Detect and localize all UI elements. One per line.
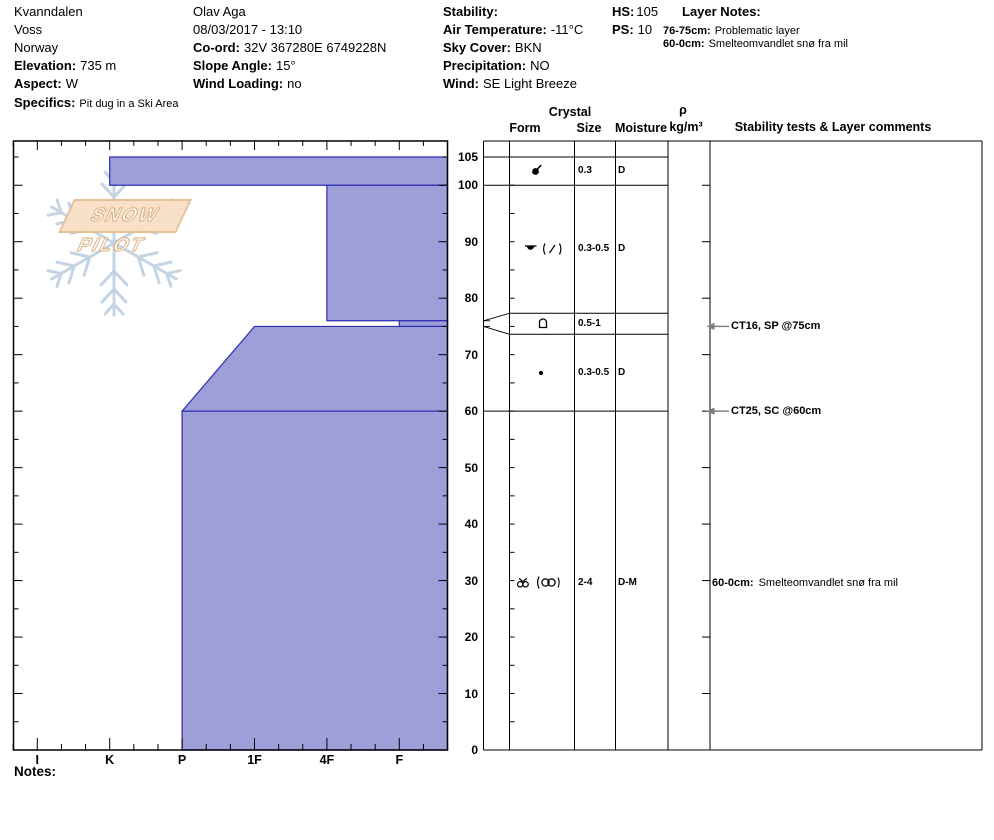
- snowpit-report-page: { "colors": { "layer_fill": "#9e9ed8", "…: [0, 0, 994, 840]
- grain-size-cell: 0.5-1: [578, 317, 601, 331]
- snow-layer: [182, 411, 447, 750]
- snow-layer: [182, 326, 447, 411]
- notes-label: Notes:: [14, 764, 56, 779]
- depth-tick-label: 0: [471, 742, 478, 758]
- depth-tick-label: 70: [465, 347, 478, 363]
- depth-tick-label: 105: [458, 149, 478, 165]
- hardness-tick-label: F: [384, 753, 414, 767]
- hardness-tick-label: P: [167, 753, 197, 767]
- grain-size-cell: 0.3-0.5: [578, 366, 609, 380]
- depth-tick-label: 10: [465, 686, 478, 702]
- horned-double-circle-grain-icon: [515, 575, 532, 590]
- hardness-tick-label: K: [95, 753, 125, 767]
- density-symbol-header: ρ: [673, 103, 693, 117]
- moisture-cell: D: [618, 366, 625, 380]
- crystal-header: Crystal: [540, 105, 600, 119]
- dot-slash-grain-icon: [530, 163, 544, 177]
- paren-slash-grain-icon: [541, 242, 564, 256]
- snow-layer: [110, 157, 448, 185]
- depth-tick-label: 50: [465, 460, 478, 476]
- thin-layer-expansion-wedge: [484, 313, 510, 334]
- grain-size-cell: 0.3: [578, 164, 592, 178]
- snow-layer: [327, 185, 448, 321]
- form-header: Form: [500, 121, 550, 135]
- stability-tests-header: Stability tests & Layer comments: [707, 120, 959, 134]
- moisture-cell: D: [618, 164, 625, 178]
- paren-double-circle-grain-icon: [535, 575, 563, 590]
- grain-size-cell: 0.3-0.5: [578, 242, 609, 256]
- table-grid: [484, 141, 983, 750]
- snowpilot-watermark-banner: SNOW PILOT: [58, 199, 192, 233]
- depth-tick-label: 80: [465, 290, 478, 306]
- stability-test-result: CT25, SC @60cm: [731, 405, 821, 418]
- depth-tick-label: 60: [465, 403, 478, 419]
- hardness-tick-label: 4F: [312, 753, 342, 767]
- snow-layer: [399, 321, 447, 327]
- dot-topbar-grain-icon: [524, 242, 538, 256]
- size-header: Size: [564, 121, 614, 135]
- depth-tick-label: 100: [458, 177, 478, 193]
- depth-tick-label: 20: [465, 629, 478, 645]
- stability-test-result: CT16, SP @75cm: [731, 320, 820, 333]
- depth-tick-label: 30: [465, 573, 478, 589]
- moisture-header: Moisture: [615, 121, 667, 135]
- depth-axis-labels: 1051009080706050403020100: [449, 0, 478, 840]
- layer-comment: 60-0cm:Smelteomvandlet snø fra mil: [712, 577, 898, 590]
- small-dot-grain-icon: [534, 366, 548, 380]
- density-units-header: kg/m³: [661, 120, 711, 134]
- depth-tick-label: 40: [465, 516, 478, 532]
- hardness-tick-label: 1F: [240, 753, 270, 767]
- depth-tick-label: 90: [465, 234, 478, 250]
- arch-square-grain-icon: [536, 316, 550, 330]
- moisture-cell: D: [618, 242, 625, 256]
- moisture-cell: D-M: [618, 576, 637, 590]
- grain-size-cell: 2-4: [578, 576, 592, 590]
